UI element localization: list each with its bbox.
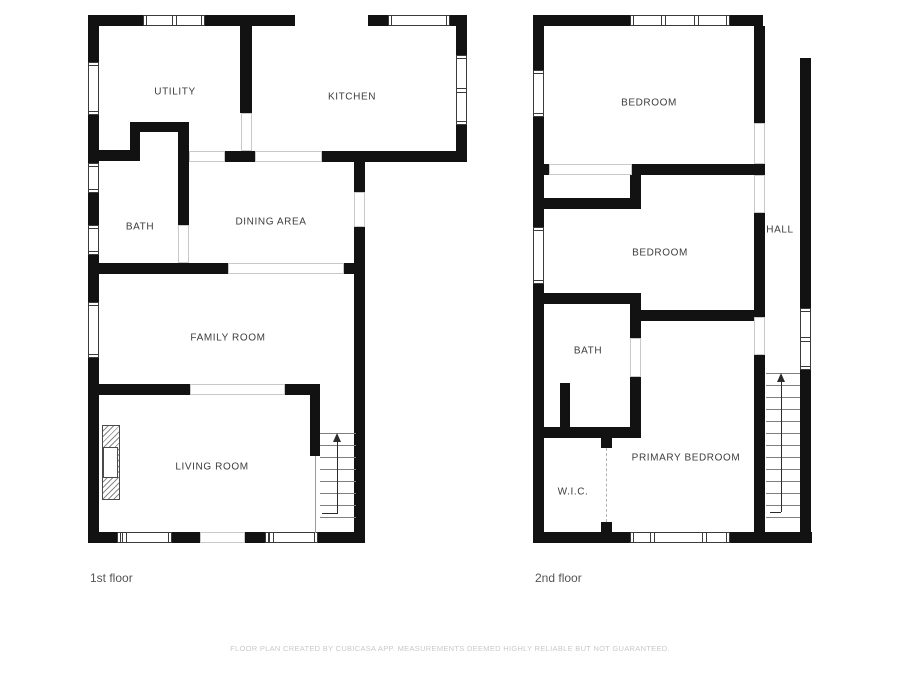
room-label-primary-bedroom: PRIMARY BEDROOM xyxy=(632,453,741,464)
room-label-family-room: FAMILY ROOM xyxy=(190,333,265,344)
window-mullion xyxy=(661,16,662,25)
window-mullion xyxy=(89,251,98,252)
floor-label-second: 2nd floor xyxy=(535,571,582,585)
stair-tread xyxy=(766,493,800,494)
window-mullion xyxy=(801,337,810,338)
window-mullion xyxy=(457,58,466,59)
window-mullion xyxy=(146,16,147,25)
room-label-bedroom: BEDROOM xyxy=(621,98,677,109)
wall xyxy=(178,263,189,274)
stairs-direction-line xyxy=(781,381,782,512)
door-opening xyxy=(754,317,765,355)
wall xyxy=(601,522,612,532)
window-mullion xyxy=(168,533,169,542)
stair-tread xyxy=(766,457,800,458)
room-label-living-room: LIVING ROOM xyxy=(175,462,248,473)
door-opening xyxy=(189,151,225,162)
room-label-bedroom: BEDROOM xyxy=(632,248,688,259)
window-mullion xyxy=(89,166,98,167)
wall xyxy=(630,377,641,433)
window-mullion xyxy=(665,16,666,25)
door-opening xyxy=(190,384,285,395)
stair-tread xyxy=(766,433,800,434)
wall xyxy=(240,26,252,113)
window-mullion xyxy=(633,16,634,25)
window-mullion xyxy=(89,228,98,229)
wall xyxy=(533,164,549,175)
wall xyxy=(560,383,570,433)
window-mullion xyxy=(391,16,392,25)
wall xyxy=(344,263,365,274)
wall xyxy=(601,438,612,448)
wall xyxy=(544,427,641,438)
room-label-kitchen: KITCHEN xyxy=(328,92,376,103)
window-mullion xyxy=(122,533,123,542)
stair-outline xyxy=(315,456,316,533)
window-mullion xyxy=(706,533,707,542)
window-mullion xyxy=(457,88,466,89)
window-mullion xyxy=(457,92,466,93)
wall xyxy=(544,293,641,304)
stair-tread xyxy=(320,493,356,494)
disclaimer-text: FLOOR PLAN CREATED BY CUBICASA APP. MEAS… xyxy=(0,644,900,653)
stair-tread xyxy=(766,385,800,386)
stairs-direction-line xyxy=(770,512,781,513)
window-mullion xyxy=(650,533,651,542)
wall xyxy=(88,384,190,395)
stair-tread xyxy=(320,517,356,518)
window-mullion xyxy=(120,533,121,542)
stair-tread xyxy=(766,469,800,470)
window-mullion xyxy=(633,533,634,542)
stair-tread xyxy=(766,409,800,410)
wall xyxy=(630,293,641,338)
window-mullion xyxy=(457,121,466,122)
door-opening xyxy=(228,263,344,274)
room-label-utility: UTILITY xyxy=(154,87,195,98)
wall xyxy=(640,310,755,321)
wall xyxy=(88,150,130,161)
window-mullion xyxy=(698,16,699,25)
wall xyxy=(632,164,765,175)
window xyxy=(143,15,205,26)
room-label-dining-area: DINING AREA xyxy=(235,217,306,228)
window-mullion xyxy=(534,230,543,231)
window xyxy=(456,55,467,125)
room-label-hall: HALL xyxy=(766,225,793,236)
floor-label-first: 1st floor xyxy=(90,571,133,585)
window-mullion xyxy=(801,311,810,312)
window xyxy=(533,70,544,117)
window-mullion xyxy=(726,16,727,25)
window xyxy=(630,15,730,26)
window-mullion xyxy=(726,533,727,542)
stair-tread xyxy=(766,505,800,506)
window-mullion xyxy=(654,533,655,542)
floor-plan-canvas: UTILITYKITCHENBATHDINING AREAFAMILY ROOM… xyxy=(0,0,900,675)
wall xyxy=(754,213,765,317)
wall xyxy=(544,198,641,209)
stair-tread xyxy=(766,397,800,398)
stair-tread xyxy=(320,481,356,482)
window xyxy=(630,532,730,543)
up-arrow-icon xyxy=(777,373,785,382)
window xyxy=(88,302,99,358)
window-mullion xyxy=(534,113,543,114)
window-mullion xyxy=(89,305,98,306)
door-opening xyxy=(754,123,765,164)
window-mullion xyxy=(89,189,98,190)
stair-tread xyxy=(766,481,800,482)
window-mullion xyxy=(172,16,173,25)
window-mullion xyxy=(314,533,315,542)
door-opening xyxy=(630,338,641,377)
stair-tread xyxy=(320,505,356,506)
door-opening xyxy=(549,164,632,175)
window xyxy=(388,15,450,26)
wall xyxy=(225,151,255,162)
window xyxy=(533,227,544,284)
window-mullion xyxy=(801,366,810,367)
window-mullion xyxy=(176,16,177,25)
door-opening xyxy=(255,151,322,162)
window-mullion xyxy=(269,533,270,542)
door-opening xyxy=(754,175,765,213)
window-mullion xyxy=(273,533,274,542)
wall xyxy=(310,394,320,456)
window-mullion xyxy=(89,111,98,112)
up-arrow-icon xyxy=(333,433,341,442)
wall xyxy=(354,227,365,543)
stair-tread xyxy=(766,517,800,518)
window-mullion xyxy=(702,533,703,542)
fireplace-inner xyxy=(103,447,118,478)
stair-tread xyxy=(320,469,356,470)
window-mullion xyxy=(694,16,695,25)
wall xyxy=(754,355,765,537)
window-mullion xyxy=(89,354,98,355)
window-mullion xyxy=(89,65,98,66)
wall xyxy=(130,122,140,161)
window-mullion xyxy=(534,280,543,281)
stairs-direction-line xyxy=(337,441,338,514)
door-opening xyxy=(200,532,245,543)
wall xyxy=(178,122,189,225)
stair-tread xyxy=(766,445,800,446)
wall xyxy=(354,162,365,192)
stair-tread xyxy=(320,457,356,458)
door-opening xyxy=(178,225,189,263)
window-mullion xyxy=(201,16,202,25)
door-opening xyxy=(354,192,365,227)
window-mullion xyxy=(446,16,447,25)
window-mullion xyxy=(126,533,127,542)
window-mullion xyxy=(801,341,810,342)
stair-tread xyxy=(320,445,356,446)
wall xyxy=(322,151,467,162)
room-label-bath: BATH xyxy=(126,222,154,233)
room-label-bath: BATH xyxy=(574,346,602,357)
stair-tread xyxy=(766,421,800,422)
wall xyxy=(88,263,228,274)
window xyxy=(800,308,811,370)
stairs-direction-line xyxy=(322,513,337,514)
wall xyxy=(754,26,765,123)
window-mullion xyxy=(534,73,543,74)
window xyxy=(88,62,99,115)
door-opening xyxy=(241,113,252,151)
closet-opening-line xyxy=(606,448,607,522)
room-label-w-i-c: W.I.C. xyxy=(558,487,589,498)
wall xyxy=(800,58,811,543)
